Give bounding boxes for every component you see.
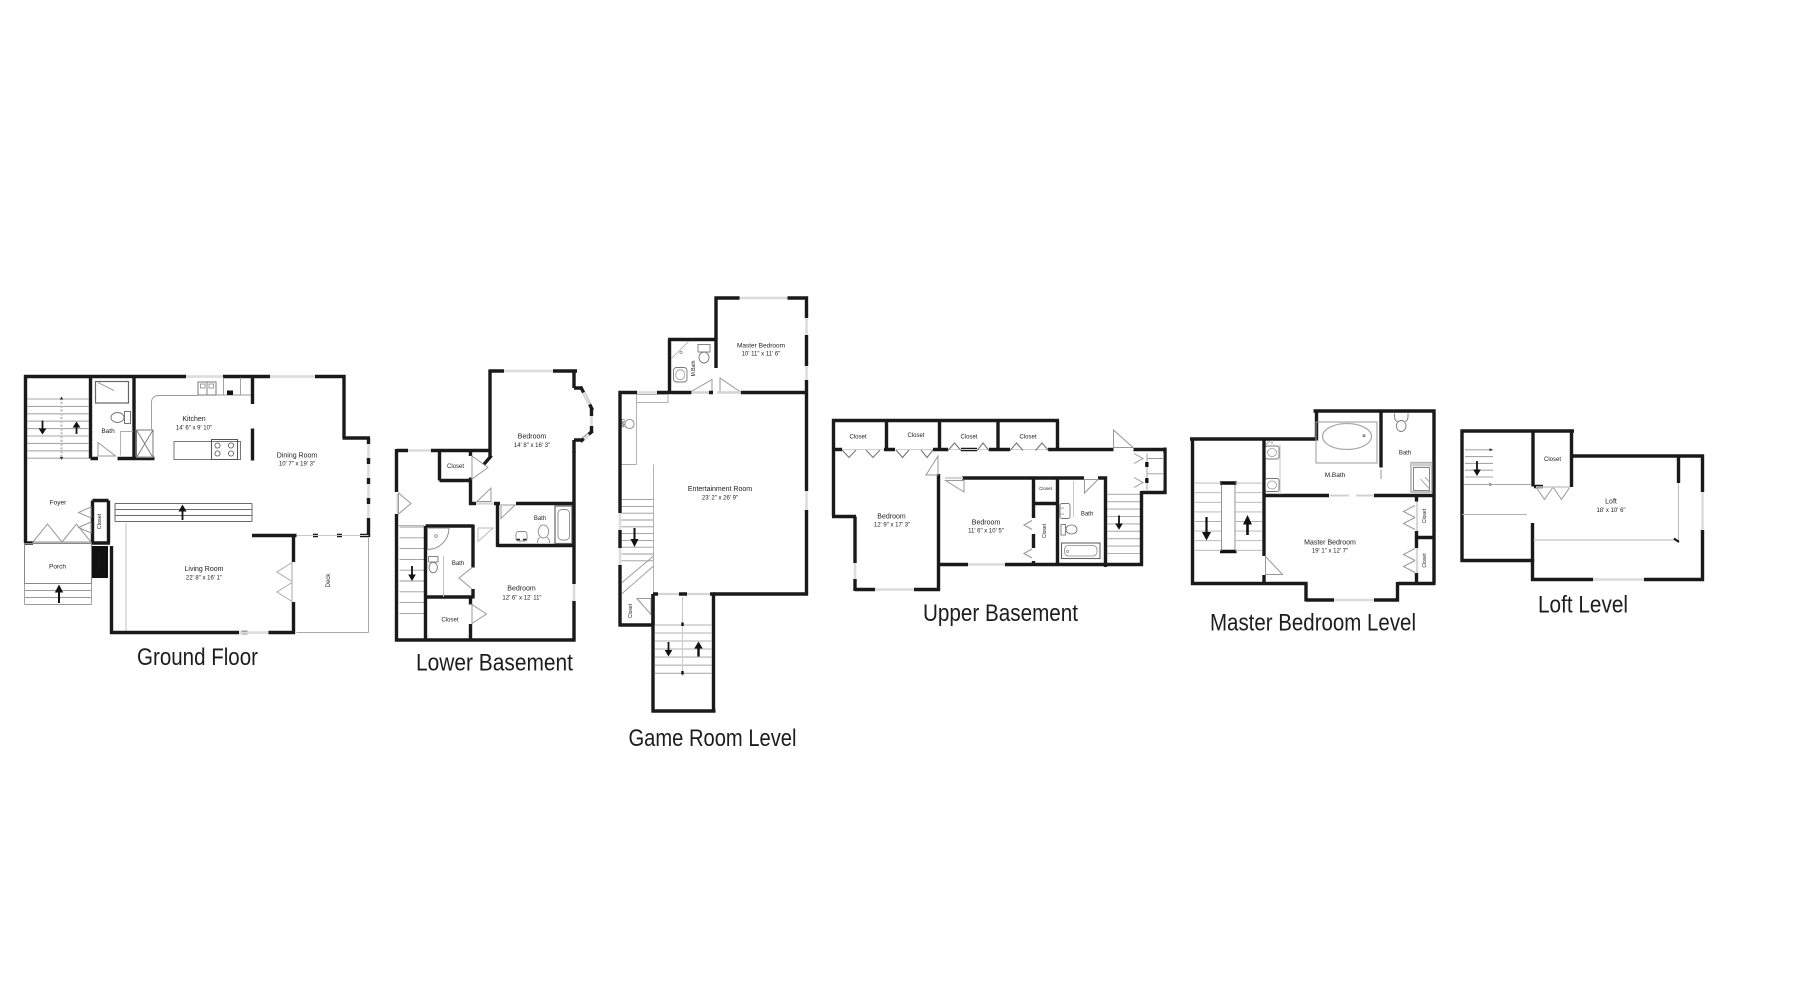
svg-text:Closet: Closet xyxy=(1039,486,1053,491)
svg-text:Upper Basement: Upper Basement xyxy=(923,600,1078,627)
svg-text:M.Bath: M.Bath xyxy=(691,360,697,376)
svg-text:Master Bedroom: Master Bedroom xyxy=(1304,540,1356,547)
svg-text:Closet: Closet xyxy=(1544,457,1561,463)
svg-text:Bedroom: Bedroom xyxy=(518,434,547,441)
svg-text:Dining Room: Dining Room xyxy=(277,453,318,460)
svg-text:Closet: Closet xyxy=(628,603,634,618)
svg-text:10' 7" x 19' 3": 10' 7" x 19' 3" xyxy=(279,462,315,468)
svg-text:Master Bedroom Level: Master Bedroom Level xyxy=(1210,610,1416,637)
svg-text:12' 6" x 12' 11": 12' 6" x 12' 11" xyxy=(502,596,541,602)
svg-text:12' 9" x 17' 3": 12' 9" x 17' 3" xyxy=(874,523,910,529)
svg-text:Closet: Closet xyxy=(1422,553,1428,568)
svg-text:Bedroom: Bedroom xyxy=(507,586,536,593)
svg-text:Living Room: Living Room xyxy=(185,566,224,573)
svg-text:Foyer: Foyer xyxy=(50,500,67,507)
svg-text:Closet: Closet xyxy=(1042,523,1048,538)
svg-text:Lower Basement: Lower Basement xyxy=(416,650,573,677)
svg-text:14' 8" x 16' 3": 14' 8" x 16' 3" xyxy=(514,443,550,449)
svg-text:Kitchen: Kitchen xyxy=(182,416,205,423)
svg-text:10' 11" x 11' 6": 10' 11" x 11' 6" xyxy=(742,352,781,358)
svg-text:Ground Floor: Ground Floor xyxy=(137,644,258,671)
svg-text:Bath: Bath xyxy=(1399,451,1411,457)
svg-text:Loft Level: Loft Level xyxy=(1538,592,1628,619)
svg-text:M.Bath: M.Bath xyxy=(1325,472,1346,479)
svg-text:Deck: Deck xyxy=(326,573,332,588)
svg-text:18' x 10' 6": 18' x 10' 6" xyxy=(1596,508,1625,514)
svg-text:Bath: Bath xyxy=(534,516,546,522)
svg-text:11' 6" x 10' 5": 11' 6" x 10' 5" xyxy=(968,529,1004,535)
svg-text:Closet: Closet xyxy=(849,435,866,441)
svg-text:Closet: Closet xyxy=(907,433,924,439)
svg-text:Bath: Bath xyxy=(101,428,115,435)
svg-text:14' 6" x 9' 10": 14' 6" x 9' 10" xyxy=(176,426,212,432)
svg-text:Bedroom: Bedroom xyxy=(877,514,906,521)
svg-text:Bedroom: Bedroom xyxy=(972,520,1001,527)
svg-text:Closet: Closet xyxy=(1422,508,1428,523)
svg-text:Bath: Bath xyxy=(1081,512,1093,518)
svg-text:23' 2" x 26' 9": 23' 2" x 26' 9" xyxy=(702,496,738,502)
svg-text:Master Bedroom: Master Bedroom xyxy=(737,343,785,350)
svg-text:22' 8" x 16' 1": 22' 8" x 16' 1" xyxy=(186,576,222,582)
svg-text:Game Room Level: Game Room Level xyxy=(629,725,797,752)
svg-text:Entertainment Room: Entertainment Room xyxy=(688,486,752,493)
svg-text:Closet: Closet xyxy=(1019,435,1036,441)
svg-text:Closet: Closet xyxy=(97,513,103,529)
svg-text:19' 1" x 12' 7": 19' 1" x 12' 7" xyxy=(1312,549,1348,555)
svg-text:Closet: Closet xyxy=(960,435,977,441)
svg-text:Closet: Closet xyxy=(441,618,458,624)
svg-text:Porch: Porch xyxy=(49,564,66,571)
svg-text:Loft: Loft xyxy=(1605,499,1617,506)
svg-text:Closet: Closet xyxy=(447,464,464,470)
svg-text:Bath: Bath xyxy=(452,561,464,567)
svg-text:Fireplace: Fireplace xyxy=(96,552,101,570)
